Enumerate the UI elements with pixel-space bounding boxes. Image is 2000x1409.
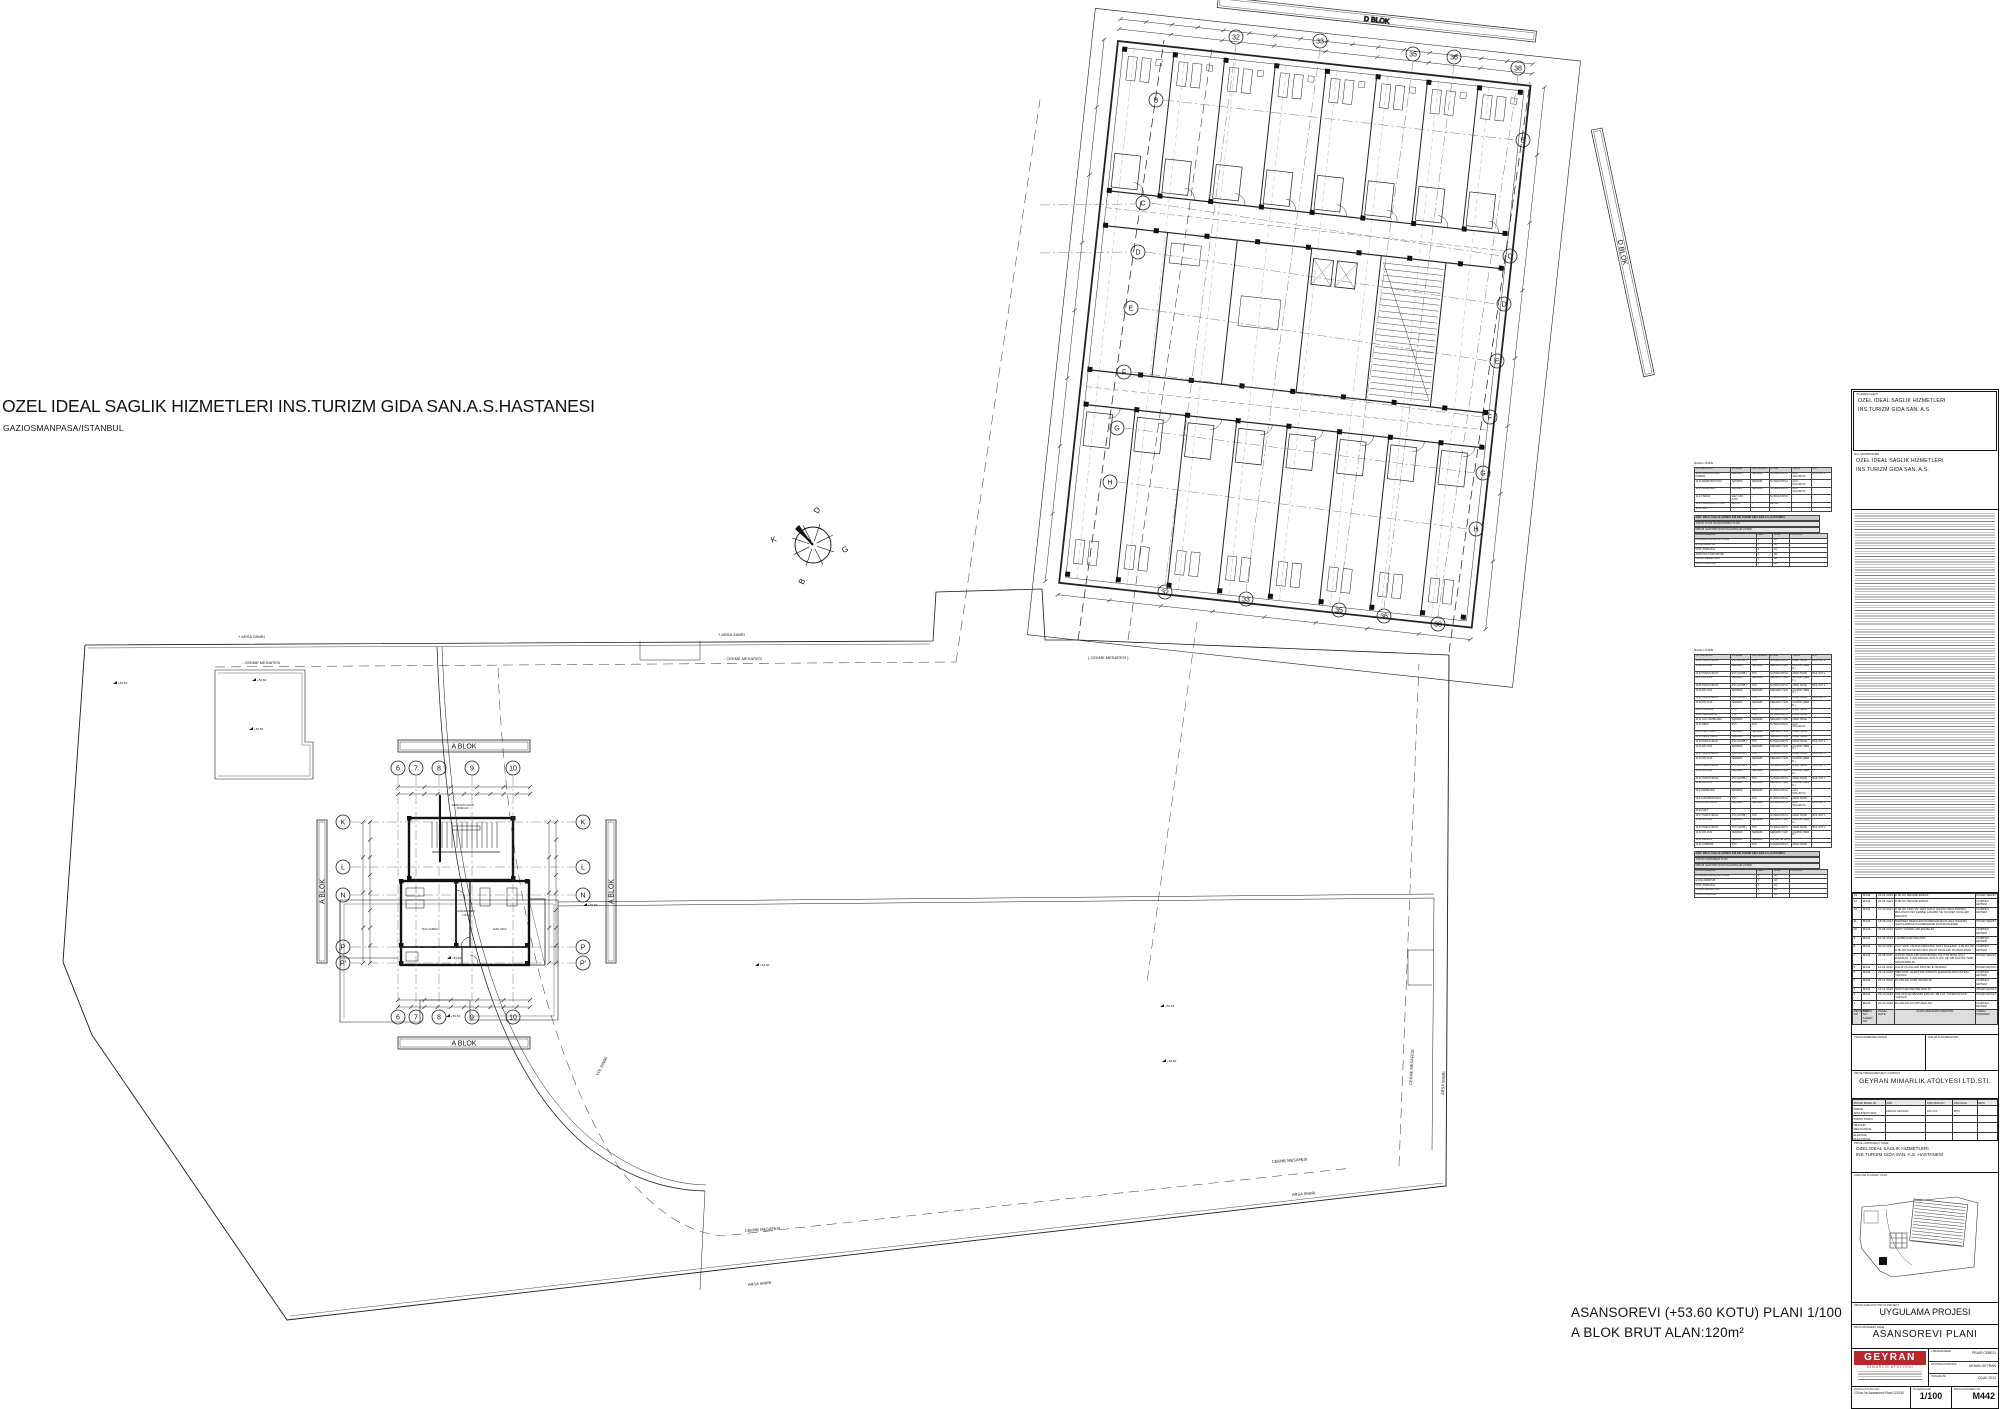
mahal-row: 13.12 DEPOPVCPVCSU BAZLI BOYAALCI SIVA+B… xyxy=(1695,723,1832,731)
grid-bubble-label: 6 xyxy=(396,765,400,772)
grid-bubble-label: 36 xyxy=(1450,54,1458,61)
revision-cell: 4 xyxy=(1853,979,1862,988)
drawing-text: +53.60 xyxy=(1167,1059,1177,1063)
mahal-cell: - xyxy=(1811,781,1831,789)
donati-cell: ACIL AYDINLATMA xyxy=(1695,893,1757,898)
signature-cell: 100-710 xyxy=(1926,1106,1953,1116)
grid-bubble-label: B xyxy=(1521,137,1526,144)
spot-elevations: +53.60+53.60+53.60+53.60+53.60+53.60+53.… xyxy=(113,678,1177,1063)
grid-bubble-label: P' xyxy=(580,960,586,967)
mahal-cell: SU BAZLI BOYA xyxy=(1769,480,1791,488)
mahal-cell: SERAMIK xyxy=(1751,472,1769,480)
mahal-table: NO MAHAL ADIDOSEMESUPURGELIKDUVARTAVANNO… xyxy=(1694,654,1832,848)
mahal-row: 14.01 ASANSOR MAK. DAIRESISERAMIKSERAMIK… xyxy=(1695,472,1832,480)
grid-bubble-label: 38 xyxy=(1514,65,1522,72)
mahal-row: 13.28 WC-DUSSERAMIKSERAMIKSERAMIK H:220A… xyxy=(1695,818,1832,826)
donati-cell xyxy=(1789,893,1827,898)
drawing-text: A BLOK xyxy=(319,879,326,904)
drawing-text: +53.60 xyxy=(588,903,598,907)
mahal-row: 13.06 WC-DUSSERAMIKSERAMIKSERAMIK H:220A… xyxy=(1695,689,1832,697)
grid-bubble-label: 33 xyxy=(1242,596,1250,603)
grid-bubble-label: P' xyxy=(340,960,346,967)
company-box: PROJE FIRMASI/PROJECT COMPANY GEYRAN MIM… xyxy=(1852,1071,1998,1099)
key-plan-map xyxy=(1852,1177,1994,1295)
signature-cell: KENAN GEYRAN xyxy=(1885,1106,1926,1116)
drawing-text: ARSA SINIRI xyxy=(1440,1071,1446,1095)
mahal-cell: PVC xyxy=(1751,723,1769,731)
block-dimension-bar: A BLOK xyxy=(398,740,530,752)
revision-cell: 10 xyxy=(1853,928,1862,937)
mahal-cell: ALCIPAN (NEM D.) xyxy=(1791,757,1811,765)
block-dimension-bar: A BLOK xyxy=(317,820,327,963)
mahal-cell: - xyxy=(1811,664,1831,672)
mahal-cell: - xyxy=(1811,701,1831,709)
revision-cell: 5 xyxy=(1853,970,1862,979)
mahal-cell: SERAMIK xyxy=(1731,745,1751,753)
project-name-box: PROJE ADI/PROJECT NAME OZEL IDEAL SAGLIK… xyxy=(1852,1141,1998,1173)
grid-bubble-label: 10 xyxy=(509,1014,517,1021)
mahal-cell: 14.01 ASANSOR MAK. DAIRESI xyxy=(1695,472,1731,480)
drawing-text: CEKME MESAFESI xyxy=(1408,1049,1415,1085)
mahal-cell: 13.30 WC-DUS xyxy=(1695,831,1731,839)
revision-cell: 24.05.2012 xyxy=(1877,928,1894,937)
revision-row: 4M44225.11.2010PLANLAR 1/100 CEVRILDI.NU… xyxy=(1853,979,1998,988)
mahal-cell: - xyxy=(1811,487,1831,495)
mahal-cell: SERAMIK xyxy=(1751,745,1769,753)
site-boundary xyxy=(63,40,1530,1320)
revision-cell: PINAR SERIN xyxy=(1975,953,1997,965)
mahal-cell: BKZ. NOT 2 xyxy=(1811,472,1831,480)
mahal-cell: SERAMIK H:220 xyxy=(1769,769,1791,777)
mahal-cell: SU BAZLI BOYA xyxy=(1769,487,1791,495)
mahal-row: 13.20 WC-DUSSERAMIKSERAMIKSERAMIK H:220A… xyxy=(1695,769,1832,777)
grid-bubble-label: 7 xyxy=(414,765,418,772)
page-title: OZEL IDEAL SAGLIK HIZMETLERI INS.TURIZM … xyxy=(2,396,595,417)
donati-row: ACIL AYDINLATMA2AD xyxy=(1695,893,1828,898)
grid-bubble-label: 9 xyxy=(470,1014,474,1021)
phase-box: PROJE SAFHASI/TYPE OF PROJECT UYGULAMA P… xyxy=(1852,1303,1998,1325)
revision-cell: M442 xyxy=(1862,928,1877,937)
revision-cell: PLANLAR OLUSTURULDU. xyxy=(1894,1001,1975,1010)
revision-cell: PINAR SERIN xyxy=(1975,919,1997,928)
mahal-row: 13.22 WC-DUSSERAMIKSERAMIKSERAMIK H:220A… xyxy=(1695,781,1832,789)
revision-cell: M442 xyxy=(1862,945,1877,954)
grid-bubbles: 667788991010KKLLNNPPP'P'3232333335353636… xyxy=(336,30,1530,1024)
revision-row: 2M22325.10.2010KOLONLAR REVIZE EDILDI. 3… xyxy=(1853,992,1998,1001)
drawing-text: +53.60 xyxy=(760,963,770,967)
mahal-cell: 13.02 WC-DUS xyxy=(1695,664,1731,672)
key-plan-location-marker xyxy=(1879,1257,1887,1265)
grid-bubble-label: H xyxy=(1473,526,1478,533)
mahal-cell: SERAMIK xyxy=(1751,676,1769,684)
mahal-cell: ALCI SIVA+BOYA xyxy=(1791,472,1811,480)
mahal-cell: SERAMIK H:220 xyxy=(1769,818,1791,826)
mahal-cell: - xyxy=(1791,507,1811,512)
donati-cell xyxy=(1789,562,1827,567)
mahal-cell: SU BAZLI BOYA xyxy=(1769,495,1791,503)
mahal-row: 13.32 KORIDORPVCPVCSU BAZLI BOYAASMA TAV… xyxy=(1695,843,1832,848)
mahal-cell: GEZ. CATI KAPL. xyxy=(1731,495,1751,503)
grid-bubble-label: 9 xyxy=(470,765,474,772)
revision-cell: M442 xyxy=(1862,953,1877,965)
drawing-text: + ARSA SINIRI xyxy=(718,632,745,637)
mahal-cell: SERAMIK xyxy=(1731,480,1751,488)
scale-row: DOSYA KUTUGU NO: 13.Kat Ve Asansorevi Pl… xyxy=(1852,1387,1998,1409)
donati-table: DONATI ELEMANIADETBIRIMACIKLAMAFLORESAN … xyxy=(1694,869,1828,899)
mahal-cell: ALCI SIVA+BOYA xyxy=(1791,801,1811,809)
a-blok-texts: MERDIVEN KOVASIBOSLUGUASANSOREVI+53.60MA… xyxy=(422,804,507,931)
d-blok-top-bar: D BLOK xyxy=(1217,0,1536,42)
grid-axes xyxy=(351,45,1518,1009)
mahal-cell: SERAMIK H:220 xyxy=(1769,664,1791,672)
grid-bubble-label: 36 xyxy=(1380,613,1388,620)
revision-cell: 17.10.2012 xyxy=(1877,907,1894,919)
project-name-1: OZEL IDEAL SAGLIK HIZMETLERI xyxy=(1852,1145,1998,1152)
mahal-cell: ALCI SIVA+BOYA xyxy=(1791,789,1811,797)
mahal-cell: SERAMIK xyxy=(1751,801,1769,809)
mahal-cell: SERAMIK H:220 xyxy=(1769,689,1791,697)
room-list-table-2: MAHAL LISTESINO MAHAL ADIDOSEMESUPURGELI… xyxy=(1694,650,1820,898)
grid-bubble-label: D xyxy=(1135,249,1140,256)
signature-table: PROJE MUELLIFIISIMDIPLOMA NOODA SICILIMZ… xyxy=(1852,1099,1998,1141)
signature-cell xyxy=(1977,1106,1998,1116)
mahal-cell: - xyxy=(1811,757,1831,765)
mahal-cell: SERAMIK xyxy=(1731,701,1751,709)
grid-bubble-label: 35 xyxy=(1335,607,1343,614)
mahal-row: 14.03 MERDIVENSERAMIKSERAMIKSU BAZLI BOY… xyxy=(1695,487,1832,495)
dimension-chains: A BLOKA BLOKA BLOKA BLOK xyxy=(317,740,616,1049)
revision-cell: 25.10.2010 xyxy=(1877,992,1894,1001)
room-list-table-1: MAHAL LISTESINO MAHAL ADIDOSEMESUPURGELI… xyxy=(1694,463,1820,567)
sheetno-value: M442 xyxy=(1952,1391,1998,1401)
revision-cell: M442 xyxy=(1862,899,1877,908)
mahal-cell: SERAMIK xyxy=(1751,689,1769,697)
revision-cell: NURTEN ERTEM xyxy=(1975,907,1997,919)
mahal-cell: 13.22 WC-DUS xyxy=(1695,781,1731,789)
mahal-cell: ALCI SIVA+BOYA xyxy=(1791,723,1811,731)
revision-cell: M442 xyxy=(1862,970,1877,979)
logo-cell: GEYRAN MIMARLIK ATOLYESI xyxy=(1852,1349,1929,1386)
mahal-cell: SU BAZLI BOYA xyxy=(1769,801,1791,809)
revision-cell: ACIKLAMA EXPLANATION xyxy=(1894,1009,1975,1024)
signature-cell: MIMAR ARCHITECTURAL xyxy=(1853,1106,1886,1116)
mahal-cell: 13.08 WC-DUS xyxy=(1695,701,1731,709)
mahal-row: 14.06 SAFT----- xyxy=(1695,507,1832,512)
signature-cell xyxy=(1885,1122,1926,1132)
general-notes xyxy=(1852,513,1998,893)
revision-cell: PAFTA NO. SHEET NO xyxy=(1862,1009,1877,1024)
grid-bubble-label: C xyxy=(1507,253,1512,260)
svg-text:K: K xyxy=(770,534,779,545)
drawing-text: CEKME MESAFESI xyxy=(745,1226,781,1233)
revision-cell: 20.12.2011 xyxy=(1877,945,1894,954)
revision-cell: LAVABOLAR DEGISTI. xyxy=(1894,936,1975,945)
grid-bubble-label: G xyxy=(1114,425,1119,432)
grid-bubble-label: G xyxy=(1480,470,1485,477)
mahal-cell: ALCIPAN (NEM D.) xyxy=(1791,664,1811,672)
signature-cell: ELEKTRIK ELECTRICAL xyxy=(1853,1132,1886,1141)
mahal-cell: - xyxy=(1811,745,1831,753)
drawing-text: ( CEKME MESAFESI ) xyxy=(1088,655,1129,660)
drawing-sheet: D BLOK D BLOK A BLOKA BLOKA BLOKA BLOK 6… xyxy=(0,0,2000,1409)
mahal-cell: SERAMIK xyxy=(1731,487,1751,495)
revision-cell: 22-P AKSI YANINA MEKANIK SAFT EKLENDI. A… xyxy=(1894,945,1975,954)
mahal-row: 13.16 WC-DUSSERAMIKSERAMIKSERAMIK H:220A… xyxy=(1695,745,1832,753)
mahal-cell: 13.32 KORIDOR xyxy=(1695,843,1731,848)
mahal-cell: SERAMIK xyxy=(1731,818,1751,826)
mahal-cell: - xyxy=(1731,507,1751,512)
revision-cell: 23.12.2010 xyxy=(1877,970,1894,979)
revision-cell: PINAR EKINCI xyxy=(1975,992,1997,1001)
block-dimension-bar: A BLOK xyxy=(606,820,616,963)
grid-bubble-label: 8 xyxy=(437,765,441,772)
project-name-2: INS.TURIZM GIDA SAN. A.S. HASTANESI xyxy=(1852,1152,1998,1157)
mahal-cell: 13.16 WC-DUS xyxy=(1695,745,1731,753)
revision-cell: M442 xyxy=(1862,936,1877,945)
svg-text:D: D xyxy=(812,505,823,515)
title-block: IS VEREN/CLIENT OZEL IDEAL SAGLIK HIZMET… xyxy=(1851,389,1999,1409)
mahal-cell: SU BAZLI BOYA xyxy=(1769,789,1791,797)
north-compass: D K G B xyxy=(770,505,850,586)
mahal-cell: SERAMIK xyxy=(1731,769,1751,777)
caption-line2: A BLOK BRUT ALAN:120m² xyxy=(1571,1323,1842,1343)
mahal-row: 13.25 PANO ODASISERAMIKSERAMIKSU BAZLI B… xyxy=(1695,801,1832,809)
mahal-cell: SERAMIK xyxy=(1751,769,1769,777)
mahal-row: 13.02 WC-DUSSERAMIKSERAMIKSERAMIK H:220A… xyxy=(1695,664,1832,672)
mahal-cell: PVC xyxy=(1731,723,1751,731)
drawing-text: A BLOK xyxy=(452,1040,477,1047)
mahal-row: 14.02 MERDIVEN HOLUSERAMIKSERAMIKSU BAZL… xyxy=(1695,480,1832,488)
revision-cell: PLANLAR 1/100 CEVRILDI. xyxy=(1894,979,1975,988)
donati-row: ACIL AYDINLATMA2AD xyxy=(1695,562,1828,567)
mahal-cell: SERAMIK H:220 xyxy=(1769,676,1791,684)
revision-cell: DEPREM DERZLERI DUZENLENDI PLANA ISLENDI… xyxy=(1894,919,1975,928)
mahal-cell: - xyxy=(1751,507,1769,512)
revision-cell: M442 xyxy=(1862,907,1877,919)
mahal-cell: - xyxy=(1811,843,1831,848)
mahal-cell: ALCIPAN (NEM D.) xyxy=(1791,745,1811,753)
mahal-cell: - xyxy=(1751,495,1769,503)
receiver-label: TESLIM ALAN/RECEIVER xyxy=(1926,1035,1999,1070)
signature-cell: MEKANIK MECHANICAL xyxy=(1853,1122,1886,1132)
mahal-row: 13.23 MERDIVENSERAMIKSERAMIKSU BAZLI BOY… xyxy=(1695,789,1832,797)
grid-bubble-label: L xyxy=(581,864,585,871)
grid-bubble-label: F xyxy=(1122,369,1126,376)
mahal-cell: - xyxy=(1811,769,1831,777)
revision-cell: NURTEN ERTEM xyxy=(1975,928,1997,937)
grid-bubble-label: 10 xyxy=(509,765,517,772)
revision-cell: 24.01.2013 xyxy=(1877,899,1894,908)
grid-bubble-label: D xyxy=(1501,301,1506,308)
page-subtitle: GAZIOSMANPASA/ISTANBUL xyxy=(3,423,124,433)
grid-bubble-label: 33 xyxy=(1316,38,1324,45)
revision-row: 9M44210.04.2012LAVABOLAR DEGISTI.NURTEN … xyxy=(1853,936,1998,945)
mahal-cell: 14.06 SAFT xyxy=(1695,507,1731,512)
grid-bubble-label: N xyxy=(580,892,585,899)
donati-cell: 2 xyxy=(1757,893,1773,898)
mahal-cell: SERAMIK xyxy=(1731,789,1751,797)
revision-cell: 2 xyxy=(1853,992,1862,1001)
mahal-cell: - xyxy=(1811,818,1831,826)
drawing-text: +53.60 xyxy=(452,956,462,960)
revision-cell: CIZEN DRAWER xyxy=(1975,1009,1997,1024)
revision-cell: 13 xyxy=(1853,899,1862,908)
mahal-cell: ALCIPAN (NEM D.) xyxy=(1791,818,1811,826)
revision-cell: D BLOK REVIZE EDILDI. xyxy=(1894,899,1975,908)
mahal-table: NO MAHAL ADIDOSEMESUPURGELIKDUVARTAVANNO… xyxy=(1694,467,1832,512)
mahal-cell: 13.18 WC-DUS xyxy=(1695,757,1731,765)
drawing-text: +53.60 xyxy=(254,727,264,731)
client-name-1: OZEL IDEAL SAGLIK HIZMETLERI xyxy=(1854,396,1996,405)
mahal-cell: 14.04 TERAS xyxy=(1695,495,1731,503)
mahal-cell: SU BAZLI BOYA xyxy=(1769,723,1791,731)
mahal-cell: SERAMIK H:220 xyxy=(1769,781,1791,789)
mahal-cell: 13.12 DEPO xyxy=(1695,723,1731,731)
mahal-cell: ALCIPAN (NEM D.) xyxy=(1791,831,1811,839)
mahal-cell: ALCIPAN (NEM D.) xyxy=(1791,676,1811,684)
drawing-text: BOSLUGU xyxy=(457,807,469,810)
mahal-cell: SERAMIK xyxy=(1751,487,1769,495)
revision-row: 1M22320.10.2010PLANLAR OLUSTURULDU.NURTE… xyxy=(1853,1001,1998,1010)
signature-cell: 6872 xyxy=(1952,1106,1977,1116)
mahal-row: 13.30 WC-DUSSERAMIKSERAMIKSERAMIK H:220A… xyxy=(1695,831,1832,839)
mahal-cell: SERAMIK xyxy=(1751,831,1769,839)
donati-table: DONATI ELEMANIADETBIRIMACIKLAMAFLORESAN … xyxy=(1694,533,1828,567)
donati-cell: AD xyxy=(1773,562,1789,567)
revision-cell: 9 xyxy=(1853,936,1862,945)
grid-bubble-label: C xyxy=(1140,200,1145,207)
mahal-cell: - xyxy=(1811,831,1831,839)
grid-bubble-label: 8 xyxy=(437,1014,441,1021)
grid-bubble-label: N xyxy=(340,892,345,899)
grid-bubble-label: K xyxy=(341,819,346,826)
key-plan-box: ANAHTAR PLAN/KEY PLAN xyxy=(1852,1173,1998,1303)
drawing-text: ASANSOREVI xyxy=(457,909,475,913)
date-label: TARIH/DATE xyxy=(1929,1374,1976,1386)
revision-table: 14M44224.01.2013D BLOK REVIZE EDILDI.PIN… xyxy=(1852,893,1998,1035)
revision-row: 5M44223.12.2010MEKANIK, ELEKTRIK DONATI … xyxy=(1853,970,1998,979)
mahal-cell: - xyxy=(1769,507,1791,512)
revision-cell: MEKANIK, ELEKTRIK DONATI ELEMANLARI LIST… xyxy=(1894,970,1975,979)
revision-header-row: REVIZYON NOPAFTA NO. SHEET NOTARIH DATEA… xyxy=(1853,1009,1998,1024)
scale-value: 1/100 xyxy=(1911,1391,1951,1401)
drawing-text: ARSA SINIRI xyxy=(748,1280,772,1287)
mahal-cell: SERAMIK xyxy=(1731,472,1751,480)
delivery-boxes: TESLIM EDEN/DELIVERER TESLIM ALAN/RECEIV… xyxy=(1852,1035,1998,1071)
mahal-cell: - xyxy=(1811,676,1831,684)
grid-bubble-label: 32 xyxy=(1232,34,1240,41)
grid-bubble-label: 6 xyxy=(396,1014,400,1021)
grid-bubble-label: B xyxy=(1154,97,1159,104)
mahal-cell: SERAMIK xyxy=(1751,818,1769,826)
revision-cell: NURTEN ERTEM xyxy=(1975,899,1997,908)
control-value: KENAN GEYRAN xyxy=(1967,1362,1998,1374)
donati-cell: AD xyxy=(1773,893,1789,898)
d-blok-side-bar: D BLOK xyxy=(1591,128,1654,377)
mahal-cell: SERAMIK xyxy=(1751,701,1769,709)
drawing-text: YOL SINIRI xyxy=(594,1056,608,1077)
revision-cell: NURTEN ERTEM xyxy=(1975,970,1997,979)
revision-cell: NURTEN ERTEM xyxy=(1975,945,1997,954)
drawing-text: - CEKME MESAFESI xyxy=(242,660,280,665)
signature-cell xyxy=(1977,1122,1998,1132)
geyran-logo-sub: MIMARLIK ATOLYESI xyxy=(1854,1365,1926,1369)
mahal-row: 14.04 TERASGEZ. CATI KAPL.-SU BAZLI BOYA… xyxy=(1695,495,1832,503)
owner-name-2: INS.TURIZM GIDA SAN. A.S. xyxy=(1852,465,1998,474)
mahal-cell: SERAMIK xyxy=(1731,664,1751,672)
mahal-cell: SERAMIK xyxy=(1751,664,1769,672)
donati-cell: 2 xyxy=(1757,562,1773,567)
caption-line1: ASANSOREVI (+53.60 KOTU) PLANI 1/100 xyxy=(1571,1303,1842,1323)
sheetno-cell: PAFTA NO/SHEET NO M442 xyxy=(1952,1387,1998,1408)
drawing-text: +53.60 xyxy=(257,678,267,682)
mahal-cell: - xyxy=(1811,723,1831,731)
mahal-cell: PVC xyxy=(1751,843,1769,848)
revision-cell: M223 xyxy=(1862,1001,1877,1010)
drawing-text: ARSA SINIRI xyxy=(1292,1190,1316,1197)
mahal-cell: 13.28 WC-DUS xyxy=(1695,818,1731,826)
mahal-row: 13.08 WC-DUSSERAMIKSERAMIKSERAMIK H:220A… xyxy=(1695,701,1832,709)
mahal-cell: SERAMIK xyxy=(1731,781,1751,789)
mahal-row: 13.18 WC-DUSSERAMIKSERAMIKSERAMIK H:220A… xyxy=(1695,757,1832,765)
mahal-cell: SERAMIK H:220 xyxy=(1769,831,1791,839)
revision-cell: KOLONLAR REVIZE EDILDI. 3B KAT YONETIM K… xyxy=(1894,992,1975,1001)
revision-cell: 7 xyxy=(1853,953,1862,965)
drawing-text: A BLOK xyxy=(452,743,477,750)
mahal-cell: ALCIPAN (NEM D.) xyxy=(1791,781,1811,789)
drawing-text: +53.60 xyxy=(118,681,128,685)
signature-cell xyxy=(1885,1132,1926,1141)
mahal-cell: SERAMIK xyxy=(1731,831,1751,839)
control-label: KONTROL/CONTROL xyxy=(1929,1362,1967,1374)
revision-cell: SAFT KAPAKLARI DUZELDI. xyxy=(1894,928,1975,937)
signature-cell xyxy=(1952,1122,1977,1132)
revision-cell: 18.09.2012 xyxy=(1877,919,1894,928)
revision-cell: NURTEN ERTEM xyxy=(1975,936,1997,945)
revision-cell: 11 xyxy=(1853,919,1862,928)
revision-cell: M223 xyxy=(1862,992,1877,1001)
revision-cell: 8 xyxy=(1853,945,1862,954)
file-cell: DOSYA KUTUGU NO: 13.Kat Ve Asansorevi Pl… xyxy=(1852,1387,1911,1408)
owner-box: MAL SAHIBI/OWNER OZEL IDEAL SAGLIK HIZME… xyxy=(1852,452,1998,510)
mahal-list-title: MAHAL LISTESI xyxy=(1694,650,1820,653)
revision-cell: M442 xyxy=(1862,919,1877,928)
mahal-cell: ALCIPAN (NEM D.) xyxy=(1791,701,1811,709)
mahal-cell: SERAMIK xyxy=(1751,480,1769,488)
revision-row: 13M44224.01.2013D BLOK REVIZE EDILDI.NUR… xyxy=(1853,899,1998,908)
mahal-cell: SU BAZLI BOYA xyxy=(1769,472,1791,480)
revision-row: 10M44224.05.2012SAFT KAPAKLARI DUZELDI.N… xyxy=(1853,928,1998,937)
revision-cell: NURTEN ERTEM xyxy=(1975,1001,1997,1010)
owner-name-1: OZEL IDEAL SAGLIK HIZMETLERI xyxy=(1852,456,1998,465)
company-name: GEYRAN MIMARLIK ATOLYESI LTD.STI. xyxy=(1852,1075,1998,1085)
mahal-cell: SERAMIK xyxy=(1731,757,1751,765)
revision-row: 7M44224.08.2011HASTA ODALARI DUVARINDA Y… xyxy=(1853,953,1998,965)
mahal-cell: - xyxy=(1791,495,1811,503)
revision-cell: 10.04.2012 xyxy=(1877,936,1894,945)
grid-bubble-label: L xyxy=(341,864,345,871)
mahal-cell: PVC xyxy=(1731,843,1751,848)
grid-bubble-label: P xyxy=(581,944,586,951)
revision-row: 8M44220.12.201122-P AKSI YANINA MEKANIK … xyxy=(1853,945,1998,954)
revision-row: 11M44218.09.2012DEPREM DERZLERI DUZENLEN… xyxy=(1853,919,1998,928)
revision-cell: D BLOK 1302 VE 1303 NOLU HASTA ODALARIND… xyxy=(1894,907,1975,919)
drawing-text: + ARSA SINIRI xyxy=(238,634,265,639)
drawing-text: ELEK. PANO xyxy=(493,928,507,931)
revision-cell: 20.10.2010 xyxy=(1877,1001,1894,1010)
signature-cell xyxy=(1952,1132,1977,1141)
grid-bubble-label: 35 xyxy=(1409,51,1417,58)
